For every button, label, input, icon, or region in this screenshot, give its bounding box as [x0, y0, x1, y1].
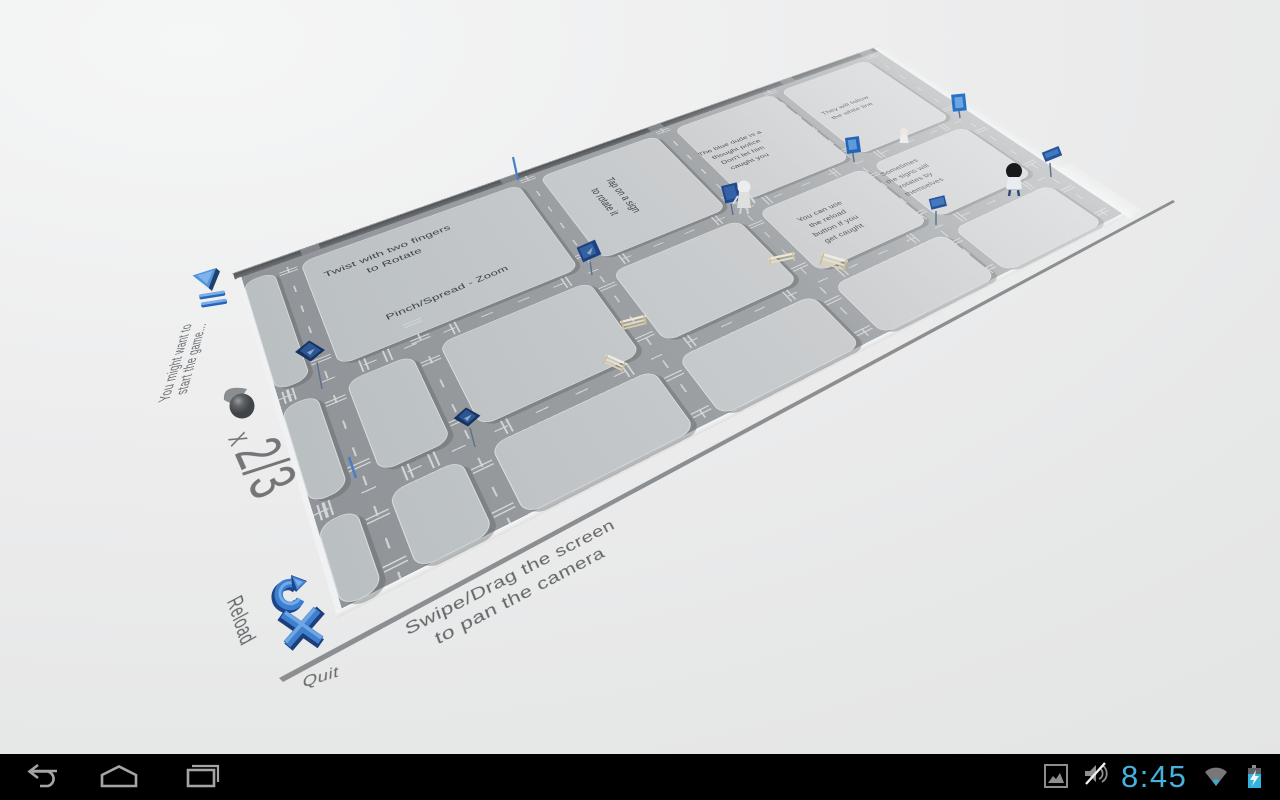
svg-text:8:45: 8:45 [1121, 759, 1187, 794]
